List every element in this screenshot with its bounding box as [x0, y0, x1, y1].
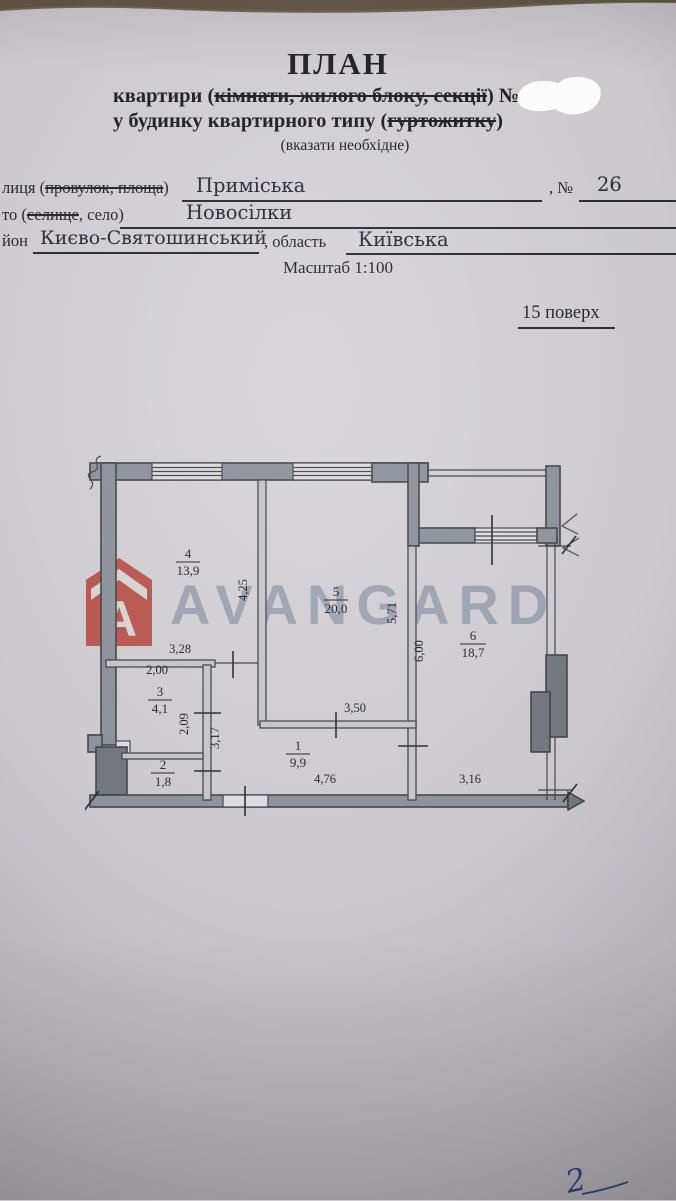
room-3-area: 4,1 — [152, 701, 168, 716]
pilaster — [531, 692, 550, 752]
floor-label: 15 поверх — [522, 303, 600, 324]
dim-3-28: 3,28 — [169, 642, 191, 656]
region-underline — [346, 253, 676, 255]
subject-post: ) № — [487, 85, 520, 107]
room-1-number: 1 — [295, 738, 302, 753]
scale-label: Масштаб 1:100 — [0, 258, 676, 278]
building-post: ) — [496, 110, 503, 132]
dim-3-16: 3,16 — [459, 772, 481, 786]
number-underline — [579, 200, 676, 202]
number-value: 26 — [597, 173, 622, 196]
room-4-number: 4 — [185, 546, 192, 561]
subject-pre: квартири ( — [113, 85, 214, 107]
break-mark-right — [563, 538, 579, 556]
handwritten-stroke — [580, 1172, 650, 1200]
interior-walls — [106, 463, 428, 800]
room-2-number: 2 — [160, 757, 167, 772]
wall-arrow-end — [568, 792, 584, 810]
settlement-label: то (селище, село) — [2, 205, 124, 225]
room-4-area: 13,9 — [177, 563, 200, 578]
dim-3-17: 3,17 — [208, 727, 222, 749]
room-5-area: 20,0 — [325, 601, 348, 616]
dim-4-76: 4,76 — [314, 772, 336, 786]
district-underline — [33, 252, 259, 254]
dim-6-00: 6,00 — [412, 640, 426, 662]
room-6-area: 18,7 — [462, 645, 485, 660]
subject-line: квартири (кімнати, жилого блоку, секції)… — [113, 85, 520, 108]
room-1-area: 9,9 — [290, 755, 306, 770]
region-value: Київська — [358, 228, 449, 251]
dim-4-25: 4,25 — [236, 579, 250, 601]
dim-5-71: 5,71 — [385, 602, 399, 624]
building-struck-option: гуртожитку — [387, 110, 496, 132]
room-5-number: 5 — [333, 584, 340, 599]
room-6-number: 6 — [470, 628, 477, 643]
number-label: , № — [549, 178, 573, 198]
dim-2-00: 2,00 — [146, 663, 168, 677]
floor-plan-drawing: 4 13,9 5 20,0 6 18,7 3 4,1 2 1,8 1 9,9 4… — [85, 450, 585, 818]
street-label: лиця (провулок, площа) — [2, 178, 169, 198]
break-mark-right — [562, 514, 578, 534]
settlement-value: Новосілки — [186, 201, 292, 224]
building-line: у будинку квартирного типу (гуртожитку) — [113, 110, 503, 133]
photo-table-edge — [0, 0, 676, 22]
district-label: йон — [2, 231, 28, 251]
floor-underline — [518, 327, 615, 329]
dim-2-09: 2,09 — [177, 713, 191, 735]
room-2-area: 1,8 — [155, 774, 171, 789]
street-value: Приміська — [196, 174, 305, 197]
scanned-floor-plan-document: { "header": { "title": "ПЛАН", "subject_… — [0, 0, 676, 1200]
dim-3-50: 3,50 — [344, 701, 366, 715]
building-pre: у будинку квартирного типу ( — [113, 110, 387, 132]
subject-struck-options: кімнати, жилого блоку, секції — [214, 85, 487, 107]
room-3-number: 3 — [157, 684, 164, 699]
note-line: (вказати необхідне) — [0, 137, 676, 155]
region-label: , область — [264, 232, 326, 252]
district-value: Києво-Святошинський — [40, 227, 267, 249]
